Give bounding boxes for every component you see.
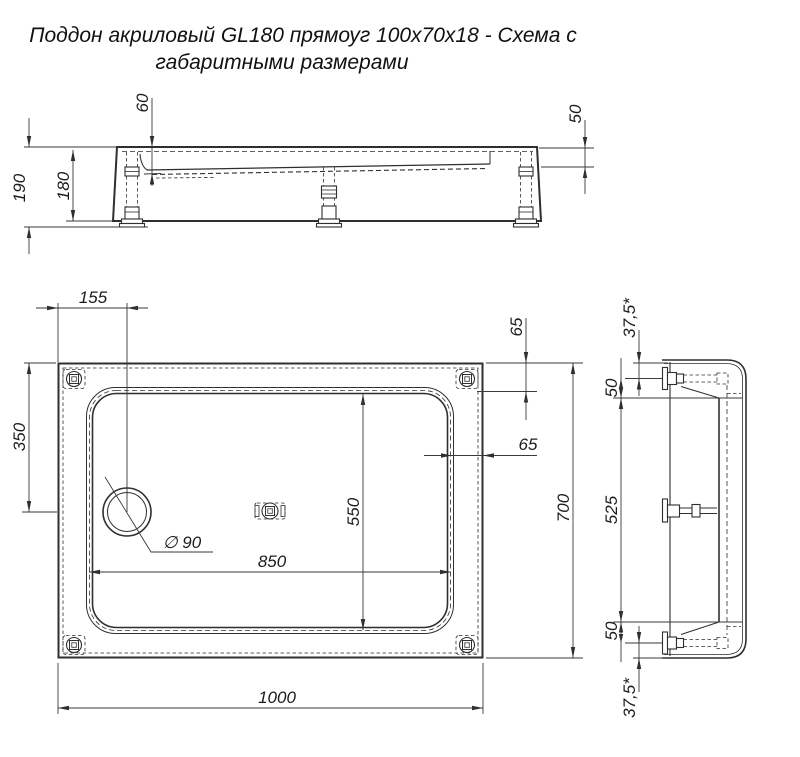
dim-label-700: 700 <box>554 493 573 522</box>
dim-drain-y-350: 350 <box>10 363 31 512</box>
dim-label-37-5-top: 37,5* <box>620 297 639 338</box>
front-leg-right <box>514 152 539 227</box>
dim-total-700: 700 <box>554 363 575 658</box>
title-line-1: Поддон акриловый GL180 прямоуг 100х70х18… <box>29 24 577 47</box>
dim-label-350: 350 <box>10 422 29 451</box>
dim-label-60: 60 <box>133 93 152 112</box>
dim-label-37-5-bottom: 37,5* <box>620 677 639 718</box>
plan-view: ∅ 90 <box>59 364 483 658</box>
dim-leg-top-50: 50 <box>602 358 623 398</box>
schematic-svg: Поддон акриловый GL180 прямоуг 100х70х18… <box>0 0 800 757</box>
dim-label-180: 180 <box>54 171 73 200</box>
dim-label-50-side-top: 50 <box>602 378 621 397</box>
dim-rim-side-65: 65 <box>424 435 538 458</box>
dim-label-525: 525 <box>602 495 621 524</box>
dim-label-50-front: 50 <box>566 104 585 123</box>
dim-height-180: 180 <box>54 150 75 221</box>
dim-label-50-side-bottom: 50 <box>602 621 621 640</box>
dim-label-190: 190 <box>10 173 29 202</box>
plan-fastener-center <box>255 503 285 519</box>
drawing-page: Поддон акриловый GL180 прямоуг 100х70х18… <box>0 0 800 757</box>
front-leg-middle <box>317 167 342 227</box>
side-leg-bottom <box>663 632 729 654</box>
dim-label-65-side: 65 <box>519 435 538 454</box>
dim-basin-550: 550 <box>344 394 365 630</box>
plan-fastener-top-left <box>63 370 85 389</box>
dim-margin-bottom-37-5: 37,5* <box>620 626 641 718</box>
dim-label-850: 850 <box>258 552 287 571</box>
side-wall-slope-bottom <box>681 622 719 635</box>
plan-view-dimensions: 155 350 65 65 550 <box>10 288 583 714</box>
dim-label-65-top: 65 <box>507 317 526 336</box>
plan-drain: ∅ 90 <box>103 477 213 552</box>
dim-height-190: 190 <box>10 118 31 254</box>
front-view-dimensions: 190 180 60 50 <box>10 93 594 254</box>
dim-rim-50: 50 <box>566 104 587 194</box>
front-floor-left-curve <box>140 154 147 170</box>
front-drain-recess <box>156 178 214 179</box>
front-view <box>113 147 541 227</box>
dim-drain-x-155: 155 <box>36 288 148 310</box>
dim-label-1000: 1000 <box>258 688 296 707</box>
side-leg-middle <box>663 499 718 522</box>
plan-fastener-top-right <box>456 370 478 389</box>
dim-total-1000: 1000 <box>58 688 483 710</box>
dim-label-550: 550 <box>344 497 363 526</box>
dim-leg-span-525: 525 <box>602 398 623 622</box>
dim-label-drain-diameter: ∅ 90 <box>163 533 202 552</box>
plan-fastener-bottom-left <box>63 636 85 655</box>
dim-rim-top-65: 65 <box>507 317 528 420</box>
front-leg-left <box>120 152 145 227</box>
front-floor-line <box>147 164 490 170</box>
side-wall-slope-top <box>681 387 719 399</box>
dim-basin-850: 850 <box>89 552 451 574</box>
side-leg-top <box>663 368 729 390</box>
dim-leg-bottom-50: 50 <box>602 621 623 662</box>
drawing-title: Поддон акриловый GL180 прямоуг 100х70х18… <box>29 24 577 74</box>
plan-fastener-bottom-right <box>456 636 478 655</box>
dim-label-155: 155 <box>79 288 108 307</box>
side-view <box>662 360 746 658</box>
dim-margin-top-37-5: 37,5* <box>620 297 641 396</box>
title-line-2: габаритными размерами <box>156 51 409 74</box>
